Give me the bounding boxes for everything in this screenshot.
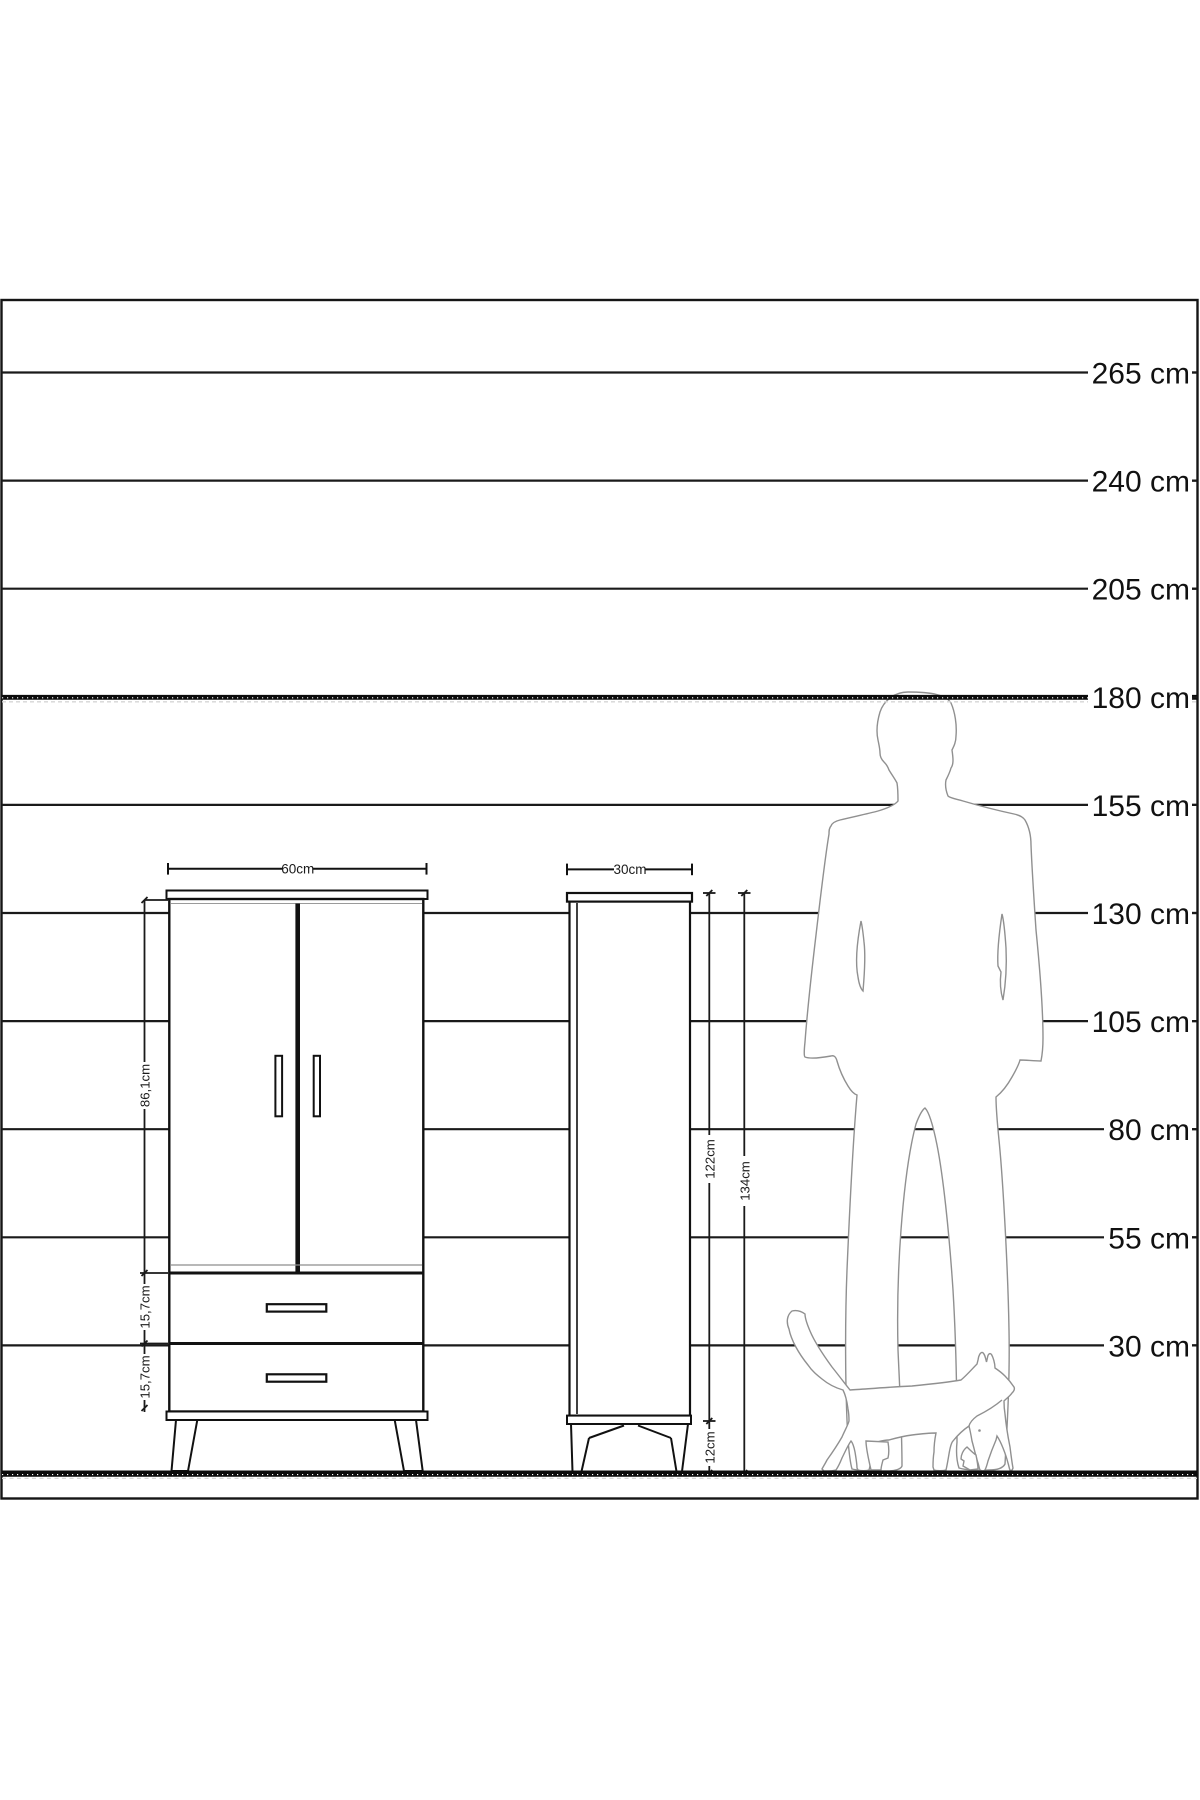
svg-text:15,7cm: 15,7cm — [138, 1355, 153, 1398]
svg-text:30 cm: 30 cm — [1108, 1330, 1190, 1363]
svg-text:240 cm: 240 cm — [1092, 466, 1190, 499]
svg-text:134cm: 134cm — [737, 1161, 752, 1201]
svg-text:122cm: 122cm — [702, 1139, 717, 1179]
svg-text:130 cm: 130 cm — [1092, 898, 1190, 931]
svg-text:60cm: 60cm — [281, 862, 314, 877]
svg-text:105 cm: 105 cm — [1092, 1006, 1190, 1039]
svg-text:12cm: 12cm — [702, 1431, 717, 1463]
svg-text:180 cm: 180 cm — [1092, 682, 1190, 715]
svg-text:155 cm: 155 cm — [1092, 790, 1190, 823]
svg-text:55 cm: 55 cm — [1108, 1222, 1190, 1255]
svg-text:30cm: 30cm — [613, 862, 646, 877]
svg-text:86,1cm: 86,1cm — [138, 1064, 153, 1107]
svg-text:265 cm: 265 cm — [1092, 358, 1190, 391]
svg-text:205 cm: 205 cm — [1092, 574, 1190, 607]
svg-text:15,7cm: 15,7cm — [138, 1285, 153, 1328]
svg-text:80 cm: 80 cm — [1108, 1114, 1190, 1147]
